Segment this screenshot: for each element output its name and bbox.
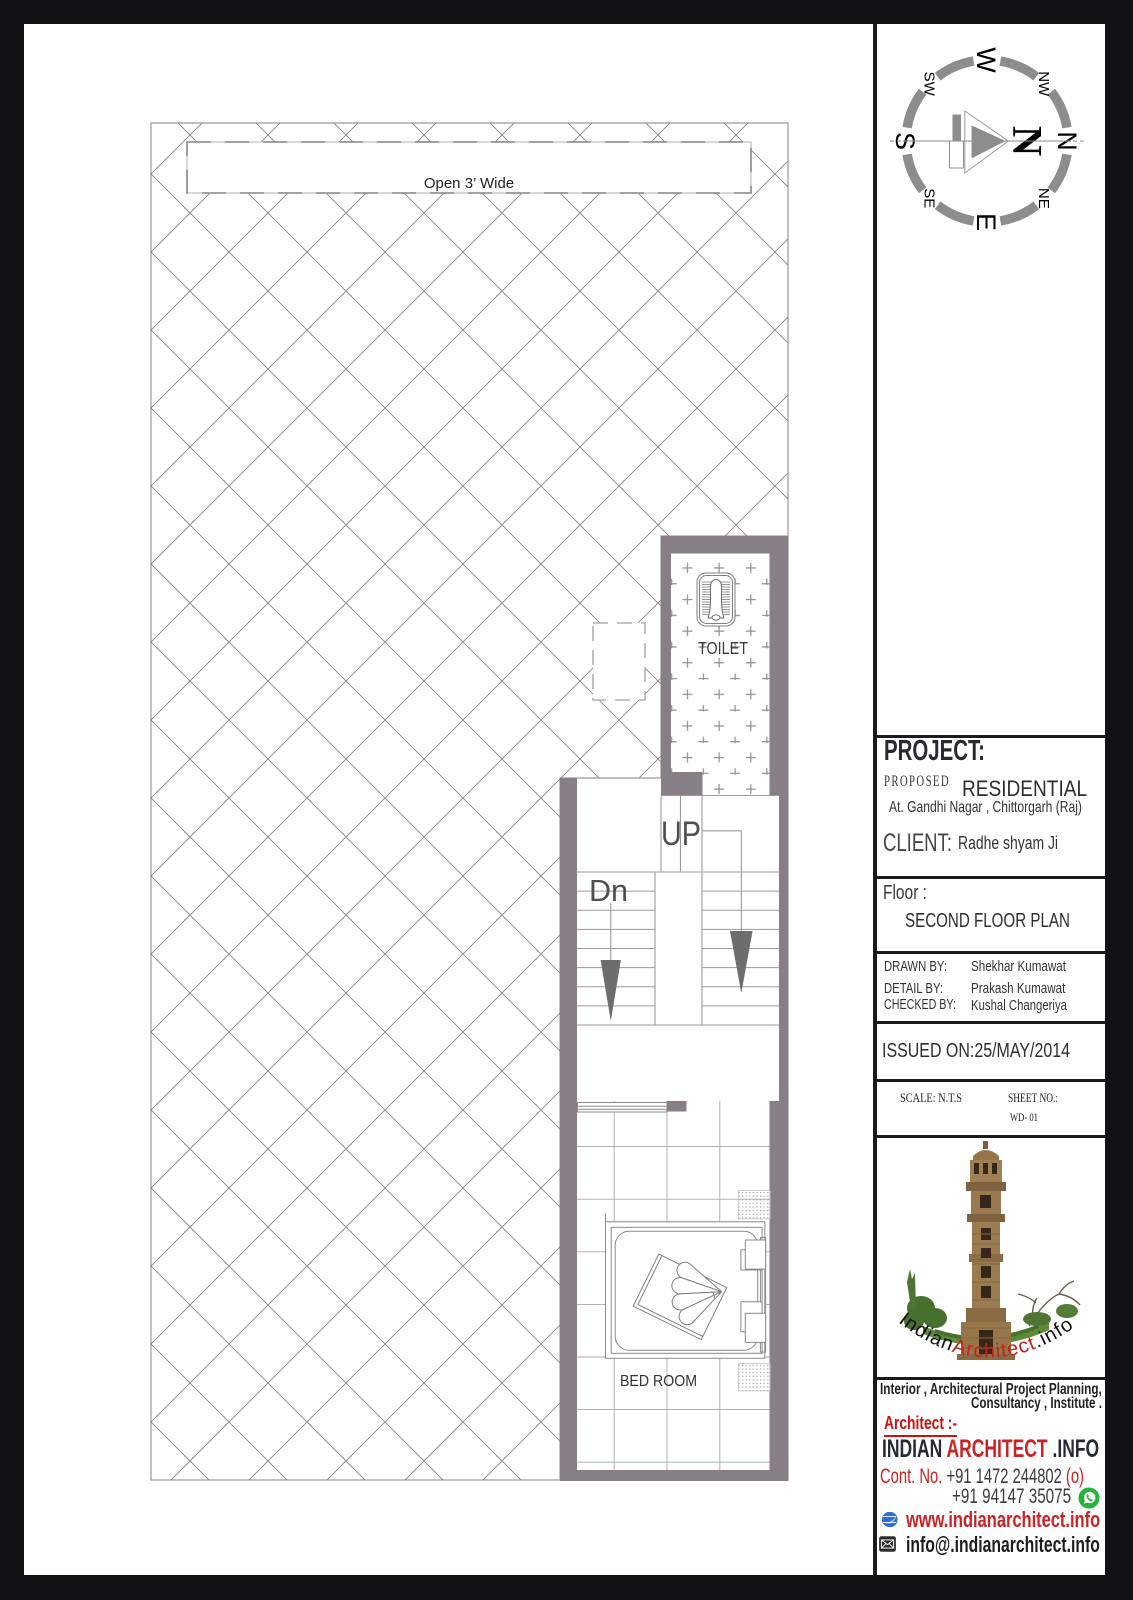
svg-text:TOILET: TOILET (698, 638, 748, 658)
svg-text:NW: NW (1035, 71, 1052, 97)
svg-text:W: W (971, 47, 1001, 73)
svg-text:Dn: Dn (589, 873, 628, 908)
svg-text:BED ROOM: BED ROOM (620, 1373, 697, 1390)
svg-text:Open 3’ Wide: Open 3’ Wide (424, 175, 514, 192)
svg-text:SE: SE (920, 188, 937, 208)
svg-text:SW: SW (920, 72, 937, 97)
svg-text:UP: UP (661, 815, 701, 853)
svg-text:NE: NE (1035, 188, 1052, 209)
svg-text:E: E (971, 213, 1001, 231)
